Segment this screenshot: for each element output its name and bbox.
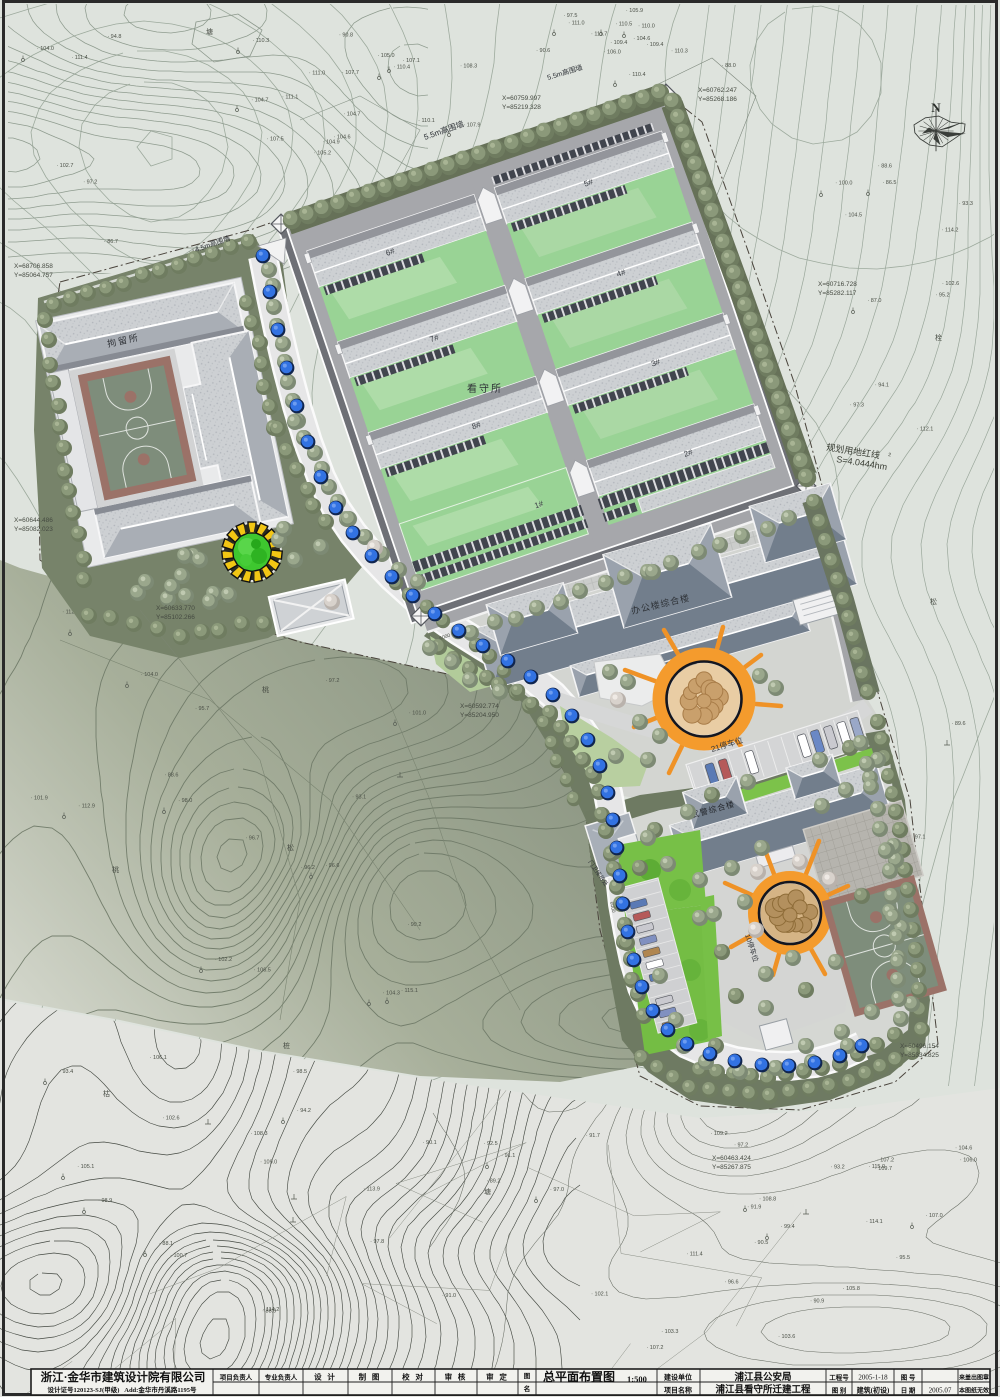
svg-text:图 号: 图 号	[901, 1373, 916, 1382]
svg-text:· 111.4: · 111.4	[686, 1251, 702, 1257]
svg-text:· 93.1: · 93.1	[352, 794, 366, 800]
svg-text:校 对: 校 对	[402, 1372, 425, 1382]
svg-text:建设单位: 建设单位	[664, 1373, 692, 1382]
svg-text:看守所: 看守所	[467, 382, 503, 395]
svg-text:· 114.2: · 114.2	[942, 228, 959, 234]
svg-text:浦江县公安局: 浦江县公安局	[734, 1371, 791, 1383]
svg-text:2005.07: 2005.07	[929, 1387, 952, 1395]
svg-text:· 98.5: · 98.5	[293, 1069, 307, 1075]
svg-text:项目名称: 项目名称	[664, 1386, 692, 1395]
svg-text:来盖出图章: 来盖出图章	[959, 1374, 989, 1382]
svg-text:· 109.0: · 109.0	[260, 1160, 277, 1166]
svg-text:· 111.4: · 111.4	[71, 55, 87, 61]
svg-text:· 114.1: · 114.1	[866, 1219, 883, 1225]
svg-text:· 97.3: · 97.3	[850, 402, 864, 408]
svg-text:X=60716.728: X=60716.728	[818, 281, 857, 288]
svg-text:X=60633.770: X=60633.770	[156, 605, 195, 612]
svg-text:· 105.1: · 105.1	[77, 1164, 94, 1170]
svg-text:日 期: 日 期	[901, 1386, 916, 1395]
svg-text:专业负责人: 专业负责人	[265, 1373, 298, 1382]
svg-text:· 102.6: · 102.6	[162, 1115, 179, 1121]
svg-text:· 88.9: · 88.9	[262, 1309, 276, 1315]
svg-text:Y=85219.328: Y=85219.328	[502, 104, 541, 111]
svg-text:X=60496.154: X=60496.154	[900, 1043, 939, 1050]
svg-text:塘: 塘	[206, 27, 213, 36]
svg-text:· 106.0: · 106.0	[604, 50, 621, 56]
svg-text:· 104.6: · 104.6	[633, 36, 650, 42]
svg-text:Y=85064.757: Y=85064.757	[14, 272, 53, 279]
svg-text:桩: 桩	[283, 1041, 290, 1050]
svg-text:· 91.7: · 91.7	[586, 1133, 600, 1139]
svg-text:· 88.6: · 88.6	[878, 163, 892, 169]
svg-text:· 107.2: · 107.2	[646, 1345, 663, 1351]
svg-text:· 111.0: · 111.0	[568, 21, 584, 27]
svg-text:Y=85267.875: Y=85267.875	[712, 1164, 751, 1171]
svg-text:· 105.8: · 105.8	[843, 1286, 860, 1292]
svg-text:· 96.6: · 96.6	[724, 1280, 738, 1286]
svg-text:· 104.9: · 104.9	[323, 139, 340, 145]
svg-text:项目负责人: 项目负责人	[220, 1373, 253, 1382]
svg-text:· 109.2: · 109.2	[711, 1131, 728, 1137]
svg-text:· 107.0: · 107.0	[926, 1213, 943, 1219]
svg-text:塘: 塘	[484, 1187, 491, 1196]
svg-text:· 111.7: · 111.7	[591, 31, 607, 37]
svg-text:· 94.2: · 94.2	[297, 1108, 311, 1114]
svg-text:图 别: 图 别	[832, 1386, 847, 1395]
svg-text:· 107.5: · 107.5	[267, 136, 284, 142]
svg-text:· 104.7: · 104.7	[343, 111, 360, 117]
svg-text:· 109.7: · 109.7	[875, 1166, 892, 1172]
svg-text:· 104.7: · 104.7	[251, 97, 268, 103]
svg-text:· 103.6: · 103.6	[778, 1334, 795, 1340]
svg-text:· 106.5: · 106.5	[254, 968, 271, 974]
svg-text:· 107.7: · 107.7	[342, 70, 359, 76]
svg-text:设计证号120123-SJ(甲级) Add:金华市丹溪路: 设计证号120123-SJ(甲级) Add:金华市丹溪路1195号	[48, 1385, 197, 1394]
svg-text:· 93.2: · 93.2	[831, 1165, 845, 1171]
svg-text:· 107.2: · 107.2	[877, 1157, 894, 1163]
svg-text:· 115.1: · 115.1	[401, 988, 418, 994]
svg-text:N: N	[931, 100, 941, 115]
svg-text:· 97.2: · 97.2	[325, 678, 339, 684]
svg-text:· 87.0: · 87.0	[867, 298, 881, 304]
svg-text:X=68706.858: X=68706.858	[14, 263, 53, 270]
svg-text:· 89.2: · 89.2	[486, 1179, 500, 1185]
svg-text:· 89.6: · 89.6	[951, 721, 965, 727]
svg-text:制 图: 制 图	[359, 1372, 382, 1382]
svg-text:栓: 栓	[935, 333, 942, 342]
svg-text:· 104.0: · 104.0	[141, 672, 158, 678]
svg-text:· 111.0: · 111.0	[309, 70, 325, 76]
svg-text:审 核: 审 核	[445, 1372, 468, 1382]
svg-text:· 105.0: · 105.0	[377, 53, 394, 59]
svg-text:· 102.1: · 102.1	[591, 1292, 608, 1298]
svg-text:· 90.9: · 90.9	[810, 1298, 824, 1304]
svg-text:· 95.2: · 95.2	[936, 292, 950, 298]
svg-text:· 110.4: · 110.4	[629, 72, 646, 78]
svg-text:· 111.1: · 111.1	[282, 95, 298, 101]
svg-text:浦江县看守所迁建工程: 浦江县看守所迁建工程	[715, 1384, 811, 1396]
svg-text:· 105.2: · 105.2	[314, 151, 331, 157]
svg-text:· 91.1: · 91.1	[501, 1153, 515, 1159]
svg-text:· 96.2: · 96.2	[301, 865, 315, 871]
svg-text:· 102.7: · 102.7	[56, 163, 73, 169]
svg-text:· 93.4: · 93.4	[59, 1069, 73, 1075]
svg-text:· 95.7: · 95.7	[195, 706, 209, 712]
svg-text:枯: 枯	[103, 1089, 110, 1098]
svg-text:· 110.3: · 110.3	[671, 49, 688, 55]
svg-text:· 107.1: · 107.1	[403, 58, 420, 64]
svg-text:Y=85082.023: Y=85082.023	[14, 526, 53, 533]
svg-text:· 110.1: · 110.1	[418, 118, 435, 124]
svg-text:· 88.6: · 88.6	[164, 773, 178, 779]
svg-text:X=60762.247: X=60762.247	[698, 87, 737, 94]
svg-text:· 107.9: · 107.9	[463, 122, 480, 128]
svg-text:Y=85282.117: Y=85282.117	[818, 290, 857, 297]
svg-text:总平面布置图: 总平面布置图	[543, 1369, 615, 1384]
svg-text:· 88.1: · 88.1	[159, 1241, 173, 1247]
svg-text:桃: 桃	[112, 865, 119, 874]
svg-text:· 90.5: · 90.5	[754, 1240, 768, 1246]
svg-text:· 92.5: · 92.5	[484, 1141, 498, 1147]
svg-text:· 98.0: · 98.0	[178, 798, 192, 804]
svg-text:· 106.0: · 106.0	[960, 1158, 977, 1164]
svg-text:Y=85102.266: Y=85102.266	[156, 614, 195, 621]
svg-text:· 98.9: · 98.9	[98, 1198, 112, 1204]
svg-text:· 108.3: · 108.3	[250, 1131, 267, 1137]
svg-text:· 101.9: · 101.9	[31, 796, 48, 802]
svg-text:· 109.4: · 109.4	[646, 42, 663, 48]
svg-text:X=60759.997: X=60759.997	[502, 95, 541, 102]
svg-text:· 90.6: · 90.6	[536, 48, 550, 54]
svg-text:· 97.1: · 97.1	[911, 835, 925, 841]
svg-text:· 97.2: · 97.2	[83, 179, 97, 185]
svg-text:· 90.8: · 90.8	[339, 32, 353, 38]
svg-text:· 94.8: · 94.8	[107, 34, 121, 40]
svg-text:2005-1-18: 2005-1-18	[858, 1374, 888, 1382]
svg-text:· 99.2: · 99.2	[407, 922, 421, 928]
svg-text:· 105.9: · 105.9	[626, 8, 643, 14]
svg-text:· 102.6: · 102.6	[942, 281, 959, 287]
svg-text:设 计: 设 计	[314, 1372, 337, 1382]
svg-text:· 110.0: · 110.0	[638, 23, 655, 29]
svg-text:Y=85204.950: Y=85204.950	[460, 712, 499, 719]
svg-text:· 86.7: · 86.7	[104, 239, 118, 245]
svg-text:· 108.8: · 108.8	[759, 1196, 776, 1202]
svg-text:· 96.6: · 96.6	[325, 863, 339, 869]
svg-text:建筑(初设): 建筑(初设)	[857, 1386, 890, 1395]
svg-text:工程号: 工程号	[829, 1373, 849, 1382]
svg-text:· 112.1: · 112.1	[917, 426, 934, 432]
svg-text:· 94.1: · 94.1	[875, 382, 889, 388]
svg-text:1:500: 1:500	[627, 1374, 647, 1384]
svg-text:· 100.0: · 100.0	[835, 181, 852, 187]
svg-text:Y=85334.825: Y=85334.825	[900, 1052, 939, 1059]
svg-text:· 103.3: · 103.3	[661, 1329, 678, 1335]
svg-text:· 104.0: · 104.0	[37, 46, 54, 52]
svg-text:· 113.9: · 113.9	[363, 1187, 380, 1193]
svg-text:· 106.1: · 106.1	[150, 1055, 167, 1061]
svg-text:Y=85268.186: Y=85268.186	[698, 96, 737, 103]
svg-text:· 112.9: · 112.9	[78, 803, 95, 809]
svg-text:· 93.3: · 93.3	[959, 201, 973, 207]
svg-text:· 91.0: · 91.0	[442, 1293, 456, 1299]
svg-text:X=60463.424: X=60463.424	[712, 1155, 751, 1162]
svg-text:· 110.4: · 110.4	[393, 65, 410, 71]
svg-text:· 97.8: · 97.8	[370, 1239, 384, 1245]
svg-text:· 99.4: · 99.4	[781, 1224, 795, 1230]
svg-text:· 102.2: · 102.2	[215, 957, 232, 963]
svg-text:· 108.3: · 108.3	[460, 64, 477, 70]
svg-text:· 91.9: · 91.9	[747, 1205, 761, 1211]
svg-text:· 100.7: · 100.7	[170, 1253, 187, 1259]
svg-text:桃: 桃	[262, 685, 269, 694]
svg-text:· 97.5: · 97.5	[563, 13, 577, 19]
svg-text:松: 松	[930, 597, 937, 606]
svg-text:· 110.5: · 110.5	[615, 21, 632, 27]
svg-text:· 90.1: · 90.1	[423, 1140, 437, 1146]
svg-text:· 110.3: · 110.3	[252, 38, 269, 44]
svg-text:· 104.6: · 104.6	[955, 1145, 972, 1151]
svg-text:名: 名	[524, 1384, 531, 1393]
svg-text:X=60644.486: X=60644.486	[14, 517, 53, 524]
svg-text:· 96.7: · 96.7	[245, 836, 259, 842]
svg-text:· 104.5: · 104.5	[845, 212, 862, 218]
svg-text:· 97.0: · 97.0	[550, 1187, 564, 1193]
svg-text:松: 松	[287, 843, 294, 852]
svg-text:· 101.0: · 101.0	[409, 710, 426, 716]
svg-text:· 95.5: · 95.5	[896, 1255, 910, 1261]
svg-text:· 109.4: · 109.4	[610, 40, 627, 46]
svg-text:浙江·金华市建筑设计院有限公司: 浙江·金华市建筑设计院有限公司	[41, 1370, 206, 1384]
svg-text:审 定: 审 定	[486, 1372, 509, 1382]
svg-text:本图纸无效: 本图纸无效	[959, 1387, 989, 1395]
svg-text:· 86.5: · 86.5	[882, 180, 896, 186]
svg-text:图: 图	[524, 1371, 531, 1380]
svg-text:· 97.2: · 97.2	[734, 1142, 748, 1148]
svg-text:· 104.3: · 104.3	[383, 990, 400, 996]
svg-text:X=60592.774: X=60592.774	[460, 703, 499, 710]
